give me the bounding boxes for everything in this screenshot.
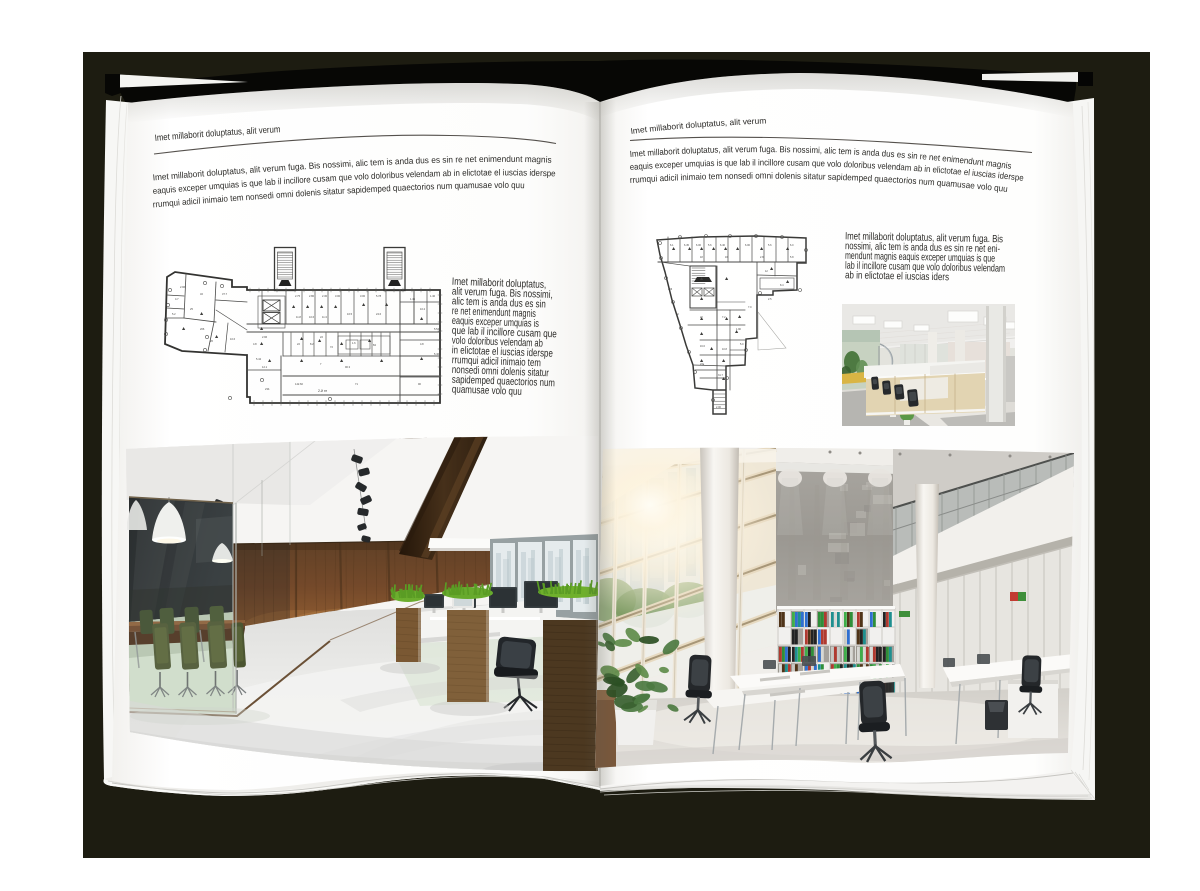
svg-text:5.78: 5.78 <box>376 294 382 298</box>
svg-text:1.45: 1.45 <box>410 297 416 301</box>
svg-text:10.8: 10.8 <box>722 348 727 351</box>
svg-text:5.2: 5.2 <box>172 312 176 316</box>
svg-text:6.45: 6.45 <box>684 244 689 247</box>
svg-text:8.2: 8.2 <box>310 342 314 346</box>
svg-text:2.96: 2.96 <box>262 335 268 339</box>
svg-text:11.3: 11.3 <box>322 315 327 319</box>
svg-text:23a: 23a <box>700 363 705 366</box>
svg-text:6.1: 6.1 <box>670 244 674 247</box>
svg-text:5.6: 5.6 <box>768 244 772 247</box>
svg-text:10.2: 10.2 <box>420 307 426 311</box>
svg-text:2.5: 2.5 <box>768 298 772 301</box>
svg-text:7.0: 7.0 <box>748 306 752 309</box>
svg-text:4.8: 4.8 <box>253 342 257 346</box>
svg-text:24.6: 24.6 <box>376 312 382 316</box>
svg-text:ab in elictotae el iuscias ide: ab in elictotae el iuscias iders <box>845 270 949 283</box>
svg-text:5.40: 5.40 <box>434 352 440 356</box>
svg-text:5.6: 5.6 <box>708 244 712 247</box>
svg-text:1.90: 1.90 <box>736 328 741 331</box>
svg-text:2-й эт: 2-й эт <box>318 389 328 393</box>
svg-text:7.2: 7.2 <box>722 316 726 319</box>
svg-text:206: 206 <box>668 288 673 291</box>
svg-text:16.5: 16.5 <box>347 312 353 316</box>
svg-text:6.06: 6.06 <box>696 244 701 247</box>
svg-text:206: 206 <box>200 327 205 331</box>
svg-text:2.06: 2.06 <box>716 406 721 409</box>
svg-text:4.7: 4.7 <box>175 297 179 301</box>
svg-text:2.75: 2.75 <box>295 294 301 298</box>
svg-text:2.80: 2.80 <box>309 294 315 298</box>
svg-text:1.40: 1.40 <box>430 294 436 298</box>
svg-text:37.7: 37.7 <box>222 292 228 296</box>
svg-text:10.6: 10.6 <box>309 315 315 319</box>
svg-text:11.8: 11.8 <box>296 315 301 319</box>
svg-text:5.42: 5.42 <box>256 357 262 361</box>
svg-text:2.96: 2.96 <box>180 285 186 289</box>
svg-text:8.4: 8.4 <box>780 284 784 287</box>
svg-text:6.06: 6.06 <box>745 244 750 247</box>
svg-text:quamusae volo quu: quamusae volo quu <box>452 384 522 398</box>
svg-text:4.8: 4.8 <box>420 342 424 346</box>
svg-text:23b: 23b <box>265 387 270 391</box>
svg-text:16.6: 16.6 <box>700 345 705 348</box>
svg-text:6.46: 6.46 <box>720 244 725 247</box>
svg-text:1.6: 1.6 <box>352 341 356 345</box>
svg-text:5.54: 5.54 <box>434 327 440 331</box>
svg-text:3.00: 3.00 <box>360 294 366 298</box>
svg-text:5.0: 5.0 <box>740 343 744 346</box>
svg-text:10.6: 10.6 <box>230 337 236 341</box>
svg-text:142.60: 142.60 <box>295 382 303 386</box>
svg-text:6.0: 6.0 <box>790 244 794 247</box>
svg-text:31.7: 31.7 <box>718 374 723 377</box>
svg-text:90.3: 90.3 <box>345 365 351 369</box>
svg-text:3.00: 3.00 <box>335 294 341 298</box>
svg-text:5.8: 5.8 <box>790 256 794 259</box>
svg-text:2.8: 2.8 <box>760 256 764 259</box>
svg-text:2.30: 2.30 <box>322 294 328 298</box>
svg-text:12.1: 12.1 <box>262 365 268 369</box>
